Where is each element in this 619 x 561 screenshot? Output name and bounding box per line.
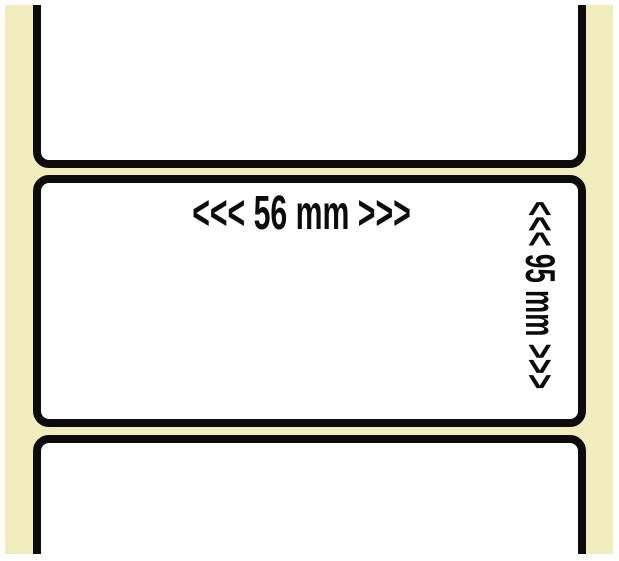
label-blank-bottom	[33, 435, 586, 554]
width-dimension-text: <<< 56 mm >>>	[132, 190, 470, 238]
height-dimension-text: <<< 95 mm >>>	[519, 201, 561, 389]
label-with-dimensions: <<< 56 mm >>> <<< 95 mm >>>	[33, 175, 586, 427]
label-blank-top	[33, 5, 586, 168]
backing-paper: <<< 56 mm >>> <<< 95 mm >>>	[5, 5, 613, 554]
label-roll-diagram: <<< 56 mm >>> <<< 95 mm >>>	[0, 0, 619, 561]
